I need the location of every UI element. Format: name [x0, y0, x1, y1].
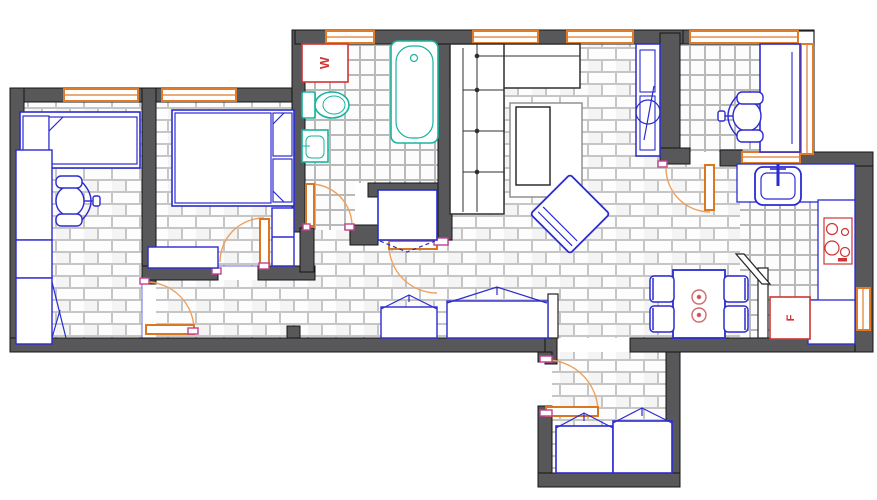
jamb — [140, 278, 149, 284]
jamb — [188, 328, 198, 334]
wall-living-balcony-divider — [660, 33, 680, 150]
wall-bottom-left — [10, 338, 548, 352]
window-balcony-kitchen-partition — [742, 152, 800, 163]
wall-pilaster — [287, 326, 300, 338]
tub-drain — [411, 55, 418, 62]
tv-cabinet — [636, 44, 660, 156]
post-hallway — [548, 294, 558, 338]
shelving-units — [16, 150, 52, 278]
jamb — [345, 224, 354, 230]
washing-machine: W — [302, 44, 348, 82]
wall-ext-bottom — [538, 473, 680, 487]
double-bed — [172, 110, 294, 206]
window-living-1 — [473, 31, 538, 43]
window-bedroom-2 — [162, 89, 236, 101]
window-balcony-right — [801, 44, 813, 154]
window-kitchen-right — [857, 288, 870, 330]
floor-plan-canvas: W — [0, 0, 877, 500]
jamb — [212, 268, 221, 274]
window-bedroom-1 — [64, 89, 138, 101]
jamb — [540, 356, 552, 362]
refrigerator: F — [770, 297, 810, 339]
jamb — [259, 263, 269, 269]
window-bathroom — [326, 31, 374, 43]
fridge-label: F — [785, 314, 797, 321]
toilet — [302, 92, 349, 118]
bathtub — [391, 41, 438, 143]
pillow — [273, 113, 292, 156]
post-balcony-corner — [798, 31, 814, 45]
wall-vestibule-connector — [300, 228, 314, 272]
balcony-desk — [760, 44, 800, 152]
kitchen-sink — [755, 164, 801, 205]
floor-plan-page: W — [0, 0, 877, 500]
side-cabinet — [272, 208, 294, 266]
counter-bottom — [808, 300, 855, 344]
wash-basin — [302, 130, 328, 162]
jamb — [303, 224, 310, 230]
cooktop — [824, 218, 852, 264]
jamb — [658, 161, 667, 167]
window-balcony-top — [690, 31, 798, 43]
pillow — [273, 159, 292, 202]
jamb — [540, 410, 552, 416]
washer-label: W — [317, 56, 332, 69]
dresser-bedroom-2 — [148, 247, 218, 268]
window-living-2 — [567, 31, 633, 43]
